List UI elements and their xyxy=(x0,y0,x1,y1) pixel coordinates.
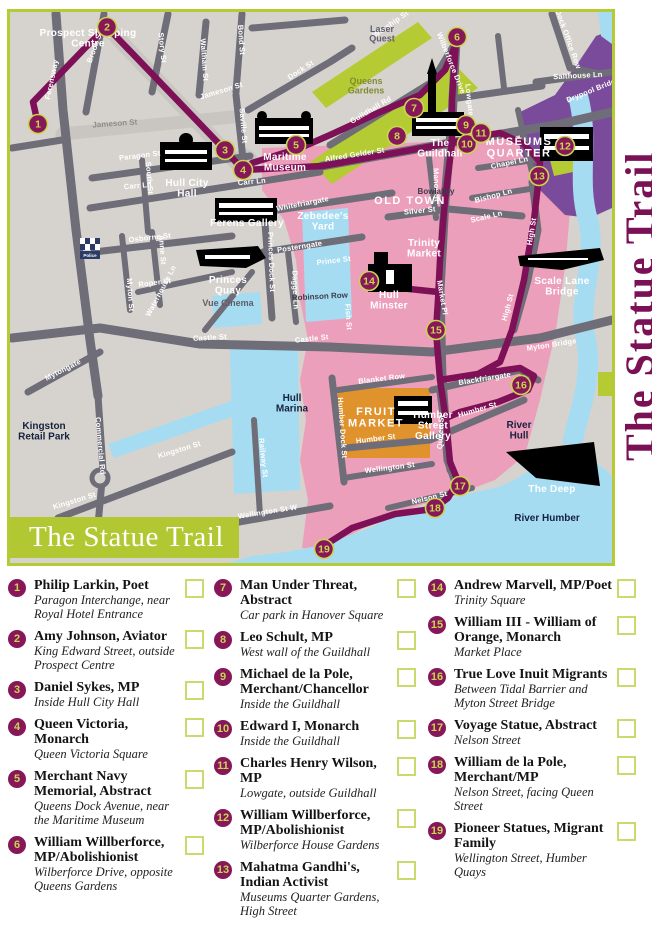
svg-text:17: 17 xyxy=(454,481,466,493)
legend-item: 5Merchant Navy Memorial, AbstractQueens … xyxy=(8,769,204,827)
trail-marker-16: 16 xyxy=(512,376,531,395)
svg-text:3: 3 xyxy=(222,145,228,157)
map-label: OLD TOWN xyxy=(374,195,446,207)
legend-location: Lowgate, outside Guildhall xyxy=(240,786,393,800)
legend-item: 19Pioneer Statues, Migrant FamilyWelling… xyxy=(428,821,636,879)
legend-marker: 12 xyxy=(214,809,232,827)
svg-text:6: 6 xyxy=(454,32,460,44)
legend-marker: 14 xyxy=(428,579,446,597)
legend-title: Mahatma Gandhi's, Indian Activist xyxy=(240,860,393,890)
legend-location: Queens Dock Avenue, near the Maritime Mu… xyxy=(34,799,181,827)
legend-title: True Love Inuit Migrants xyxy=(454,667,613,682)
legend-location: Inside Hull City Hall xyxy=(34,695,181,709)
legend-title: Merchant Navy Memorial, Abstract xyxy=(34,769,181,799)
trail-marker-1: 1 xyxy=(29,115,48,134)
legend-item: 10Edward I, MonarchInside the Guildhall xyxy=(214,719,416,748)
legend-checkbox[interactable] xyxy=(617,668,636,687)
trail-marker-12: 12 xyxy=(556,137,575,156)
map-label: RiverHull xyxy=(506,420,531,442)
legend-title: Leo Schult, MP xyxy=(240,630,393,645)
page-title: The Statue Trail xyxy=(616,9,652,461)
legend-checkbox[interactable] xyxy=(397,631,416,650)
legend-marker: 15 xyxy=(428,616,446,634)
legend-title: Voyage Statue, Abstract xyxy=(454,718,613,733)
trail-marker-3: 3 xyxy=(216,141,235,160)
legend-marker: 1 xyxy=(8,579,26,597)
legend-item: 3Daniel Sykes, MPInside Hull City Hall xyxy=(8,680,204,709)
legend-location: Trinity Square xyxy=(454,593,613,607)
legend-location: Queen Victoria Square xyxy=(34,747,181,761)
legend-item: 17Voyage Statue, AbstractNelson Street xyxy=(428,718,636,747)
legend-location: King Edward Street, outside Prospect Cen… xyxy=(34,644,181,672)
svg-text:7: 7 xyxy=(411,103,417,115)
svg-text:2: 2 xyxy=(104,22,110,34)
map-label: MUSEUMSQUARTER xyxy=(486,136,553,160)
svg-text:9: 9 xyxy=(463,120,469,132)
legend-location: Market Place xyxy=(454,645,613,659)
svg-text:16: 16 xyxy=(515,380,527,392)
legend-checkbox[interactable] xyxy=(185,630,204,649)
street-label: Dagger Ln xyxy=(290,270,300,309)
legend-item: 6William Willberforce, MP/AbolishionistW… xyxy=(8,835,204,893)
legend-title: William de la Pole, Merchant/MP xyxy=(454,755,613,785)
legend-marker: 5 xyxy=(8,770,26,788)
legend: 1Philip Larkin, PoetParagon Interchange,… xyxy=(0,565,652,909)
legend-marker: 2 xyxy=(8,630,26,648)
legend-title: Edward I, Monarch xyxy=(240,719,393,734)
map-label: MaritimeMuseum xyxy=(263,152,307,174)
legend-location: Wilberforce Drive, opposite Queens Garde… xyxy=(34,865,181,893)
legend-location: Nelson Street, facing Queen Street xyxy=(454,785,613,813)
legend-marker: 7 xyxy=(214,579,232,597)
legend-item: 8Leo Schult, MPWest wall of the Guildhal… xyxy=(214,630,416,659)
svg-text:12: 12 xyxy=(559,141,571,153)
trail-marker-15: 15 xyxy=(427,321,446,340)
map-label: Vue Cinema xyxy=(202,298,254,308)
legend-location: Paragon Interchange, near Royal Hotel En… xyxy=(34,593,181,621)
svg-text:15: 15 xyxy=(430,325,442,337)
svg-text:10: 10 xyxy=(461,139,473,151)
legend-checkbox[interactable] xyxy=(617,756,636,775)
legend-checkbox[interactable] xyxy=(397,668,416,687)
trail-marker-14: 14 xyxy=(360,272,379,291)
legend-marker: 16 xyxy=(428,668,446,686)
legend-title: Daniel Sykes, MP xyxy=(34,680,181,695)
legend-marker: 13 xyxy=(214,861,232,879)
legend-marker: 3 xyxy=(8,681,26,699)
legend-checkbox[interactable] xyxy=(397,720,416,739)
svg-text:19: 19 xyxy=(318,544,330,556)
legend-title: Pioneer Statues, Migrant Family xyxy=(454,821,613,851)
legend-title: William Willberforce, MP/Abolishionist xyxy=(34,835,181,865)
trail-marker-17: 17 xyxy=(451,477,470,496)
legend-item: 16True Love Inuit MigrantsBetween Tidal … xyxy=(428,667,636,710)
legend-title: Man Under Threat, Abstract xyxy=(240,578,393,608)
map-label: QueensGardens xyxy=(348,76,385,95)
map-label: FRUITMARKET xyxy=(348,406,404,430)
legend-location: Inside the Guildhall xyxy=(240,734,393,748)
map-label: Police xyxy=(83,253,97,258)
legend-checkbox[interactable] xyxy=(185,718,204,737)
side-title-box: The Statue Trail xyxy=(614,9,652,469)
legend-marker: 17 xyxy=(428,719,446,737)
trail-marker-13: 13 xyxy=(530,167,549,186)
map-label: HumberStreetGallery xyxy=(413,410,453,442)
map-label: TrinityMarket xyxy=(407,238,441,260)
legend-column: 7Man Under Threat, AbstractCar park in H… xyxy=(214,578,416,926)
legend-checkbox[interactable] xyxy=(397,757,416,776)
legend-location: West wall of the Guildhall xyxy=(240,645,393,659)
map-title-banner: The Statue Trail xyxy=(10,517,239,558)
trail-marker-4: 4 xyxy=(234,161,253,180)
legend-item: 14Andrew Marvell, MP/PoetTrinity Square xyxy=(428,578,636,607)
trail-marker-5: 5 xyxy=(287,136,306,155)
legend-title: William Willberforce, MP/Abolishionist xyxy=(240,808,393,838)
legend-location: Wilberforce House Gardens xyxy=(240,838,393,852)
legend-marker: 18 xyxy=(428,756,446,774)
legend-item: 1Philip Larkin, PoetParagon Interchange,… xyxy=(8,578,204,621)
legend-item: 12William Willberforce, MP/Abolishionist… xyxy=(214,808,416,852)
trail-marker-8: 8 xyxy=(388,127,407,146)
legend-checkbox[interactable] xyxy=(397,579,416,598)
legend-location: Nelson Street xyxy=(454,733,613,747)
legend-checkbox[interactable] xyxy=(617,822,636,841)
legend-marker: 4 xyxy=(8,718,26,736)
map-label: River Humber xyxy=(514,513,580,524)
legend-title: William III - William of Orange, Monarch xyxy=(454,615,613,645)
legend-title: Andrew Marvell, MP/Poet xyxy=(454,578,613,593)
street-label: Castle St xyxy=(193,332,228,343)
legend-checkbox[interactable] xyxy=(185,770,204,789)
legend-checkbox[interactable] xyxy=(617,719,636,738)
svg-text:8: 8 xyxy=(394,131,400,143)
legend-marker: 11 xyxy=(214,757,232,775)
legend-item: 13Mahatma Gandhi's, Indian ActivistMuseu… xyxy=(214,860,416,918)
svg-text:14: 14 xyxy=(363,276,375,288)
statue-trail-map: FerenswayBrook StStory StWaltham StBond … xyxy=(7,9,615,566)
legend-checkbox[interactable] xyxy=(185,579,204,598)
legend-checkbox[interactable] xyxy=(397,809,416,828)
legend-column: 1Philip Larkin, PoetParagon Interchange,… xyxy=(8,578,204,901)
map-label: KingstonRetail Park xyxy=(18,421,70,443)
legend-title: Charles Henry Wilson, MP xyxy=(240,756,393,786)
map-label: The Deep xyxy=(528,484,575,495)
legend-marker: 8 xyxy=(214,631,232,649)
map-label: Ferens Gallery xyxy=(210,218,284,229)
legend-item: 2Amy Johnson, AviatorKing Edward Street,… xyxy=(8,629,204,672)
legend-checkbox[interactable] xyxy=(185,681,204,700)
legend-checkbox[interactable] xyxy=(185,836,204,855)
legend-location: Between Tidal Barrier and Myton Street B… xyxy=(454,682,613,710)
svg-text:18: 18 xyxy=(429,503,441,515)
legend-location: Car park in Hanover Square xyxy=(240,608,393,622)
legend-column: 14Andrew Marvell, MP/PoetTrinity Square1… xyxy=(428,578,636,887)
legend-item: 11Charles Henry Wilson, MPLowgate, outsi… xyxy=(214,756,416,800)
svg-text:5: 5 xyxy=(293,140,299,152)
legend-marker: 10 xyxy=(214,720,232,738)
legend-item: 4Queen Victoria, MonarchQueen Victoria S… xyxy=(8,717,204,761)
legend-checkbox[interactable] xyxy=(617,579,636,598)
legend-item: 18William de la Pole, Merchant/MPNelson … xyxy=(428,755,636,813)
legend-location: Wellington Street, Humber Quays xyxy=(454,851,613,879)
legend-marker: 6 xyxy=(8,836,26,854)
trail-marker-2: 2 xyxy=(98,18,117,37)
svg-text:11: 11 xyxy=(475,128,486,140)
legend-marker: 19 xyxy=(428,822,446,840)
legend-item: 9Michael de la Pole, Merchant/Chancellor… xyxy=(214,667,416,711)
green-area xyxy=(598,372,612,396)
legend-title: Philip Larkin, Poet xyxy=(34,578,181,593)
trail-marker-19: 19 xyxy=(315,540,334,559)
legend-title: Queen Victoria, Monarch xyxy=(34,717,181,747)
legend-title: Michael de la Pole, Merchant/Chancellor xyxy=(240,667,393,697)
legend-item: 7Man Under Threat, AbstractCar park in H… xyxy=(214,578,416,622)
trail-marker-6: 6 xyxy=(448,28,467,47)
trail-marker-11: 11 xyxy=(472,124,491,143)
trail-marker-18: 18 xyxy=(426,499,445,518)
street-label: Fish St xyxy=(343,303,354,330)
legend-location: Museums Quarter Gardens, High Street xyxy=(240,890,393,918)
legend-item: 15William III - William of Orange, Monar… xyxy=(428,615,636,659)
legend-checkbox[interactable] xyxy=(617,616,636,635)
legend-checkbox[interactable] xyxy=(397,861,416,880)
svg-text:4: 4 xyxy=(240,165,246,177)
legend-marker: 9 xyxy=(214,668,232,686)
svg-text:13: 13 xyxy=(533,171,545,183)
svg-text:1: 1 xyxy=(35,119,41,131)
legend-title: Amy Johnson, Aviator xyxy=(34,629,181,644)
trail-marker-7: 7 xyxy=(405,99,424,118)
map-label: LaserQuest xyxy=(369,24,395,43)
legend-location: Inside the Guildhall xyxy=(240,697,393,711)
